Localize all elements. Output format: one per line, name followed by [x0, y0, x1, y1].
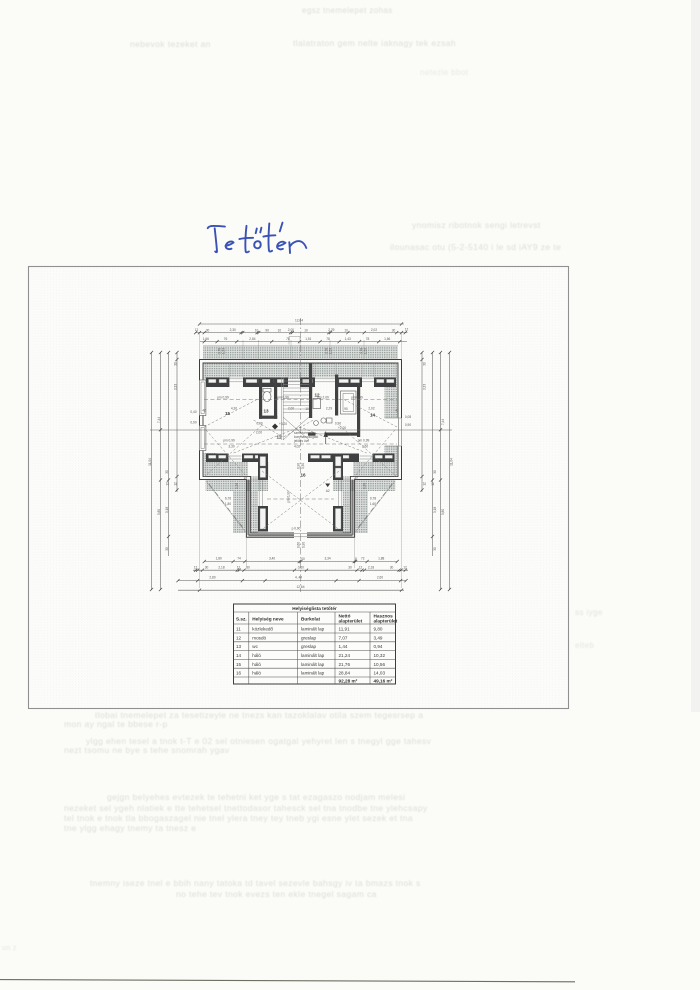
svg-text:3,33: 3,33	[422, 384, 426, 390]
svg-text:Burkolat: Burkolat	[301, 616, 320, 621]
svg-text:pm 0,99: pm 0,99	[223, 438, 235, 442]
svg-text:12: 12	[195, 328, 199, 332]
svg-text:háló: háló	[252, 653, 261, 658]
svg-text:6,76: 6,76	[225, 497, 231, 501]
svg-text:2,00: 2,00	[288, 407, 294, 411]
svg-text:tlalatraton gem nelte iaknagy: tlalatraton gem nelte iaknagy tek ezsah	[293, 38, 456, 48]
svg-text:1,66: 1,66	[203, 337, 209, 341]
svg-text:9,78: 9,78	[370, 497, 376, 501]
svg-text:11,91: 11,91	[339, 627, 351, 632]
svg-text:3,30: 3,30	[228, 445, 234, 449]
svg-text:0,90: 0,90	[301, 542, 305, 548]
svg-text:10,56: 10,56	[374, 662, 386, 667]
svg-text:30: 30	[392, 328, 396, 332]
svg-text:1,60: 1,60	[370, 502, 376, 506]
svg-text:7,07: 7,07	[339, 635, 348, 640]
svg-text:4,02: 4,02	[294, 445, 300, 449]
svg-text:pm 0,99: pm 0,99	[358, 438, 370, 442]
svg-text:7,44: 7,44	[157, 417, 161, 423]
svg-text:pm 0,99: pm 0,99	[277, 396, 289, 400]
svg-text:A2: A2	[326, 489, 330, 493]
svg-text:háló: háló	[252, 662, 261, 667]
svg-text:tel tnok e tnok tla bbogaszag: tel tnok e tnok tla bbogaszagel nie tnel…	[64, 813, 413, 823]
svg-text:12: 12	[236, 635, 242, 640]
svg-text:pm 0,99: pm 0,99	[217, 396, 229, 400]
svg-text:30: 30	[246, 565, 250, 569]
svg-text:mon ay ngal te bbese r-p: mon ay ngal te bbese r-p	[64, 719, 168, 729]
svg-text:p 0,90: p 0,90	[292, 527, 301, 531]
svg-text:12: 12	[194, 565, 198, 569]
svg-text:9,80: 9,80	[374, 627, 383, 632]
svg-text:1,51: 1,51	[305, 337, 311, 341]
svg-text:2,29: 2,29	[326, 407, 332, 411]
svg-text:2,30: 2,30	[230, 328, 236, 332]
svg-text:11,04: 11,04	[148, 458, 152, 466]
svg-text:1,53: 1,53	[364, 348, 368, 354]
svg-text:3,49: 3,49	[374, 635, 383, 640]
svg-text:laminált lap: laminált lap	[301, 671, 325, 676]
svg-text:42: 42	[395, 409, 399, 413]
svg-text:3,60: 3,60	[362, 445, 368, 449]
svg-text:3,80: 3,80	[157, 509, 161, 515]
svg-text:0,90: 0,90	[190, 421, 196, 425]
svg-text:78: 78	[366, 337, 370, 341]
svg-text:15: 15	[236, 662, 242, 667]
svg-text:1,43: 1,43	[345, 337, 351, 341]
svg-text:3,40: 3,40	[269, 556, 275, 560]
svg-text:76: 76	[224, 337, 228, 341]
svg-text:ss iyge: ss iyge	[575, 608, 603, 617]
svg-text:30: 30	[433, 470, 437, 474]
svg-text:2,80: 2,80	[209, 575, 215, 579]
svg-text:egsz tnemelepet zohas: egsz tnemelepet zohas	[302, 6, 393, 15]
svg-text:92,28 m²: 92,28 m²	[339, 678, 358, 683]
svg-text:pm 0,99: pm 0,99	[287, 491, 291, 503]
svg-text:12: 12	[422, 482, 426, 486]
svg-text:49,16 m²: 49,16 m²	[374, 678, 393, 683]
svg-text:0,40: 0,40	[190, 410, 196, 414]
svg-text:90: 90	[344, 407, 348, 411]
svg-text:nezt tsomu ne bye s tehe snom: nezt tsomu ne bye s tehe snomrah ygav	[64, 745, 230, 755]
svg-text:un z: un z	[2, 945, 17, 952]
svg-text:10: 10	[255, 328, 259, 332]
svg-text:30: 30	[390, 565, 394, 569]
svg-text:12: 12	[173, 482, 177, 486]
svg-text:12,64: 12,64	[295, 318, 303, 322]
svg-text:nebevok tezeket an: nebevok tezeket an	[130, 39, 211, 49]
svg-text:Helyiség neve: Helyiség neve	[252, 616, 284, 621]
svg-text:14: 14	[236, 653, 242, 658]
svg-text:Helyiséglista tetőtér: Helyiséglista tetőtér	[292, 606, 337, 611]
svg-text:10: 10	[304, 328, 308, 332]
svg-text:pm 2,09: pm 2,09	[317, 396, 329, 400]
svg-text:Hasznos: Hasznos	[374, 613, 394, 618]
svg-text:+2,00: +2,00	[338, 426, 346, 430]
svg-text:3,33: 3,33	[173, 384, 177, 390]
svg-text:21,76: 21,76	[339, 662, 351, 667]
svg-text:+3,20: +3,20	[279, 422, 287, 426]
svg-text:alapterület: alapterület	[339, 619, 363, 624]
svg-text:2,02: 2,02	[371, 328, 377, 332]
svg-text:háló: háló	[252, 671, 261, 676]
svg-text:1,88: 1,88	[378, 556, 384, 560]
svg-text:0,94: 0,94	[374, 644, 383, 649]
svg-text:2,60: 2,60	[377, 575, 383, 579]
svg-text:no tehe tev tnok evezs ten ek: no tehe tev tnok evezs ten ekle tnegel s…	[176, 889, 377, 899]
svg-text:7,44: 7,44	[441, 419, 445, 425]
svg-text:30: 30	[422, 362, 426, 366]
svg-text:1,80: 1,80	[225, 502, 231, 506]
svg-text:greslap: greslap	[301, 635, 317, 640]
svg-text:30: 30	[165, 470, 169, 474]
svg-text:laminált lap: laminált lap	[301, 627, 325, 632]
svg-text:Nettó: Nettó	[339, 613, 351, 618]
svg-text:8: 8	[355, 557, 357, 561]
svg-text:42: 42	[202, 409, 206, 413]
svg-text:0,60: 0,60	[296, 542, 300, 548]
svg-text:13: 13	[264, 409, 270, 414]
svg-text:nezeket sel ygeh nlatiek e tte: nezeket sel ygeh nlatiek e tte tehetsel …	[64, 803, 428, 813]
svg-text:0,90: 0,90	[256, 422, 262, 426]
svg-text:30: 30	[205, 565, 209, 569]
svg-text:greslap: greslap	[301, 644, 317, 649]
svg-text:laminált lap: laminált lap	[301, 662, 325, 667]
svg-text:10: 10	[305, 407, 309, 411]
svg-text:30: 30	[165, 547, 169, 551]
svg-text:1,80: 1,80	[216, 556, 222, 560]
svg-text:11,04: 11,04	[449, 458, 453, 466]
svg-text:10: 10	[278, 328, 282, 332]
svg-text:2,84: 2,84	[249, 337, 255, 341]
svg-text:12: 12	[165, 482, 169, 486]
svg-text:3,18: 3,18	[433, 507, 437, 513]
svg-text:3,34: 3,34	[324, 556, 330, 560]
svg-text:2,18: 2,18	[368, 565, 374, 569]
svg-text:4,30: 4,30	[231, 407, 237, 411]
svg-text:ilounasac otu (5-2-5140 i le s: ilounasac otu (5-2-5140 i le sd iAY9 ze …	[390, 242, 561, 252]
svg-text:28,84: 28,84	[339, 671, 351, 676]
svg-text:0,90: 0,90	[405, 423, 411, 427]
svg-text:tne ylgg ehagy tnemy ta tnesz: tne ylgg ehagy tnemy ta tnesz e	[64, 823, 196, 833]
svg-text:0,90: 0,90	[335, 422, 341, 426]
svg-text:0,38: 0,38	[363, 483, 367, 489]
svg-text:2,00: 2,00	[288, 328, 294, 332]
svg-text:30: 30	[173, 362, 177, 366]
svg-text:10: 10	[344, 328, 348, 332]
svg-text:gejgn belyehes evtezek te tehe: gejgn belyehes evtezek te tehetni ket yg…	[107, 792, 405, 802]
svg-text:42: 42	[354, 477, 358, 481]
svg-text:mosdó: mosdó	[252, 635, 266, 640]
svg-text:laminált lap: laminált lap	[301, 653, 325, 658]
svg-text:15: 15	[225, 411, 231, 416]
svg-text:wc: wc	[252, 644, 258, 649]
svg-text:3,30: 3,30	[301, 463, 305, 469]
svg-text:1,53: 1,53	[329, 348, 333, 354]
svg-text:ynomisz ribotnok sengi letrevs: ynomisz ribotnok sengi letrevst	[412, 220, 541, 230]
svg-text:78: 78	[326, 337, 330, 341]
svg-text:2,29: 2,29	[328, 328, 334, 332]
svg-text:30: 30	[348, 565, 352, 569]
svg-text:0,60: 0,60	[298, 565, 304, 569]
svg-text:21,24: 21,24	[339, 653, 351, 658]
svg-text:12: 12	[359, 565, 363, 569]
svg-text:74: 74	[237, 556, 241, 560]
svg-text:3,80: 3,80	[441, 509, 445, 515]
svg-text:42: 42	[244, 477, 248, 481]
svg-text:0,38: 0,38	[235, 483, 239, 489]
svg-text:1,66: 1,66	[384, 337, 390, 341]
svg-text:11: 11	[236, 627, 241, 632]
svg-text:2,00: 2,00	[256, 431, 262, 435]
svg-text:12: 12	[431, 482, 435, 486]
svg-text:S.sz.: S.sz.	[236, 616, 247, 621]
svg-text:11: 11	[277, 435, 282, 440]
svg-text:78: 78	[286, 337, 290, 341]
svg-text:30: 30	[433, 547, 437, 551]
svg-text:12: 12	[237, 565, 241, 569]
svg-text:12: 12	[405, 328, 409, 332]
svg-text:1,44: 1,44	[339, 644, 348, 649]
svg-text:2,02: 2,02	[368, 407, 374, 411]
svg-text:0,08: 0,08	[405, 415, 411, 419]
svg-text:elteb: elteb	[575, 641, 594, 650]
svg-text:alapterület: alapterület	[374, 619, 398, 624]
svg-text:14,03: 14,03	[374, 671, 386, 676]
svg-text:16: 16	[236, 671, 242, 676]
svg-text:72: 72	[361, 556, 365, 560]
svg-text:2,18: 2,18	[218, 565, 224, 569]
svg-text:közlekedő: közlekedő	[252, 627, 273, 632]
svg-text:tnemny iseze tnel e bbih nany: tnemny iseze tnel e bbih nany tatoka td …	[90, 878, 421, 888]
svg-text:16: 16	[301, 473, 307, 478]
svg-text:4 ,44: 4 ,44	[295, 575, 302, 579]
svg-text:0,90: 0,90	[297, 463, 301, 469]
svg-text:12: 12	[403, 565, 407, 569]
svg-text:90: 90	[265, 328, 269, 332]
svg-text:13: 13	[236, 644, 242, 649]
svg-text:netezle bbot: netezle bbot	[420, 68, 469, 77]
svg-text:12,64: 12,64	[297, 585, 305, 589]
svg-text:00: 00	[301, 557, 305, 561]
svg-text:14: 14	[370, 413, 376, 418]
svg-text:pm 0,99: pm 0,99	[351, 396, 363, 400]
svg-text:10,32: 10,32	[374, 653, 386, 658]
svg-text:1,53: 1,53	[222, 348, 226, 354]
svg-text:3,18: 3,18	[165, 507, 169, 513]
svg-text:30: 30	[206, 328, 210, 332]
svg-text:jelölés üve: jelölés üve	[293, 439, 309, 443]
